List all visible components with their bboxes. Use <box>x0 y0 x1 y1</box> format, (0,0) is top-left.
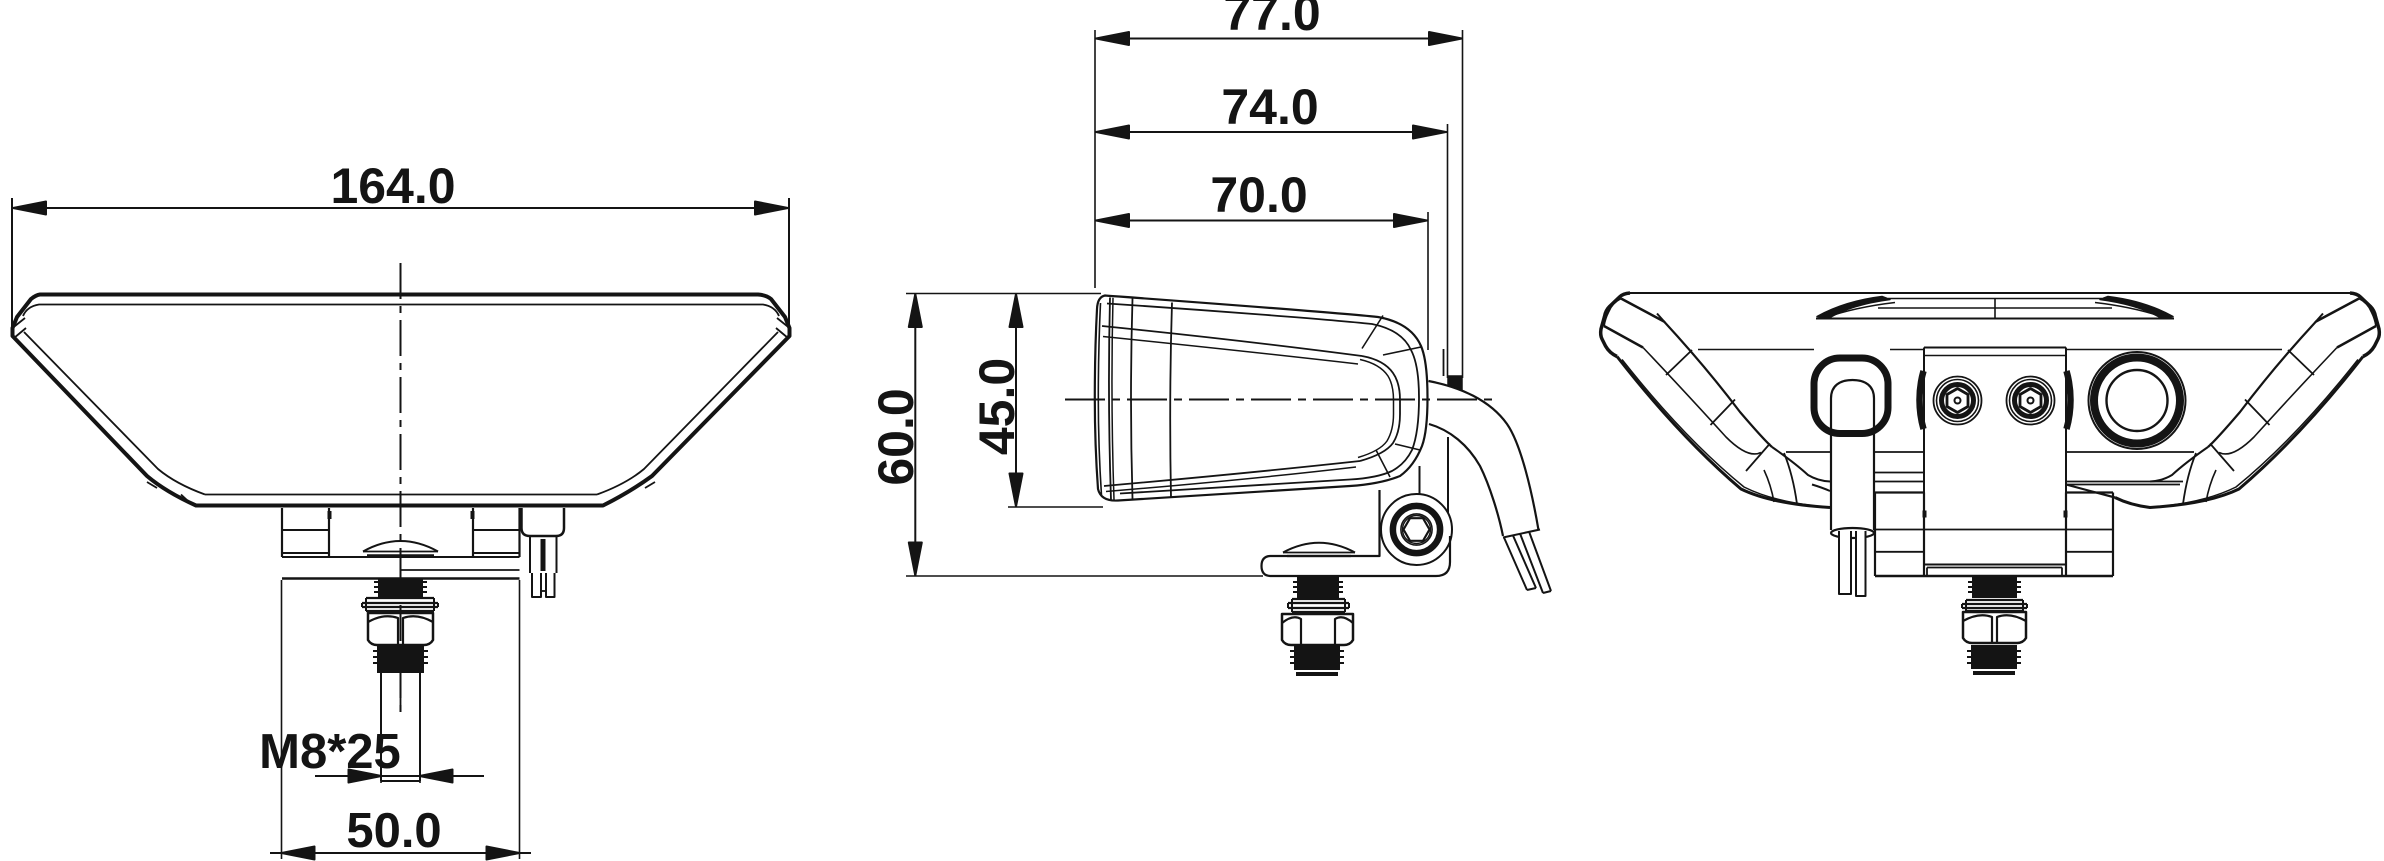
svg-text:50.0: 50.0 <box>346 804 441 858</box>
svg-text:77.0: 77.0 <box>1223 0 1320 41</box>
svg-text:74.0: 74.0 <box>1221 79 1318 135</box>
svg-text:70.0: 70.0 <box>1210 167 1307 223</box>
svg-text:M8*25: M8*25 <box>259 725 401 779</box>
svg-text:164.0: 164.0 <box>330 158 455 214</box>
